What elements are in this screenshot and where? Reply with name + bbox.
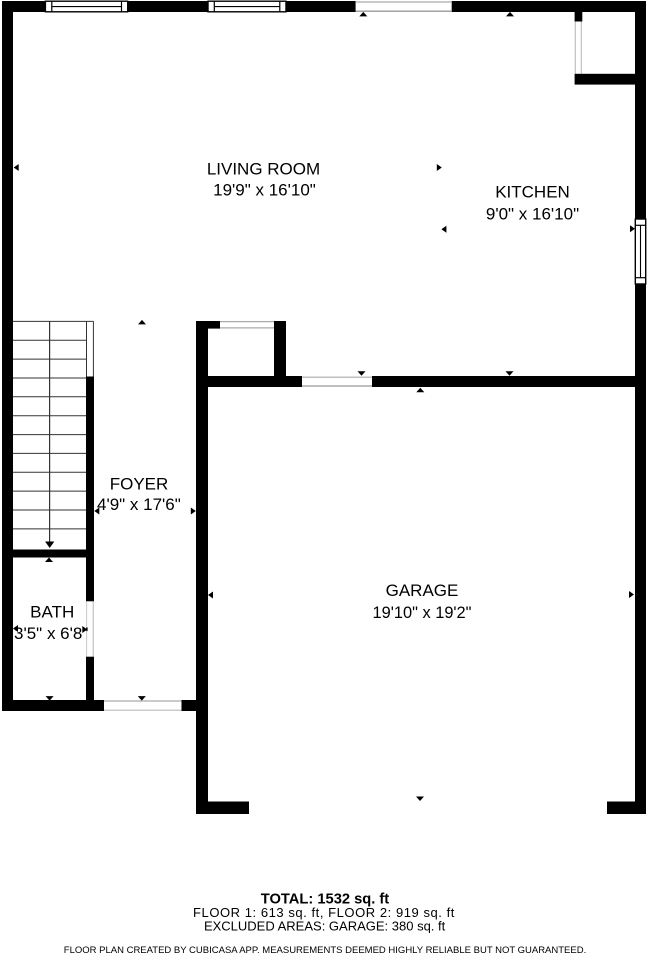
svg-text:FLOOR PLAN CREATED BY CUBICASA: FLOOR PLAN CREATED BY CUBICASA APP. MEAS…: [64, 945, 586, 956]
svg-text:19'10" x 19'2": 19'10" x 19'2": [372, 604, 471, 622]
svg-text:KITCHEN: KITCHEN: [495, 182, 570, 201]
svg-text:19'9" x 16'10": 19'9" x 16'10": [213, 181, 316, 200]
svg-text:GARAGE: GARAGE: [386, 581, 459, 600]
svg-text:FOYER: FOYER: [110, 475, 169, 494]
svg-text:EXCLUDED AREAS: GARAGE: 380 sq: EXCLUDED AREAS: GARAGE: 380 sq. ft: [204, 918, 446, 933]
svg-text:LIVING ROOM: LIVING ROOM: [207, 160, 320, 179]
svg-text:3'5" x 6'8": 3'5" x 6'8": [14, 624, 88, 643]
svg-text:BATH: BATH: [30, 602, 74, 621]
svg-text:4'9" x 17'6": 4'9" x 17'6": [97, 495, 181, 514]
svg-text:9'0" x 16'10": 9'0" x 16'10": [486, 204, 579, 223]
